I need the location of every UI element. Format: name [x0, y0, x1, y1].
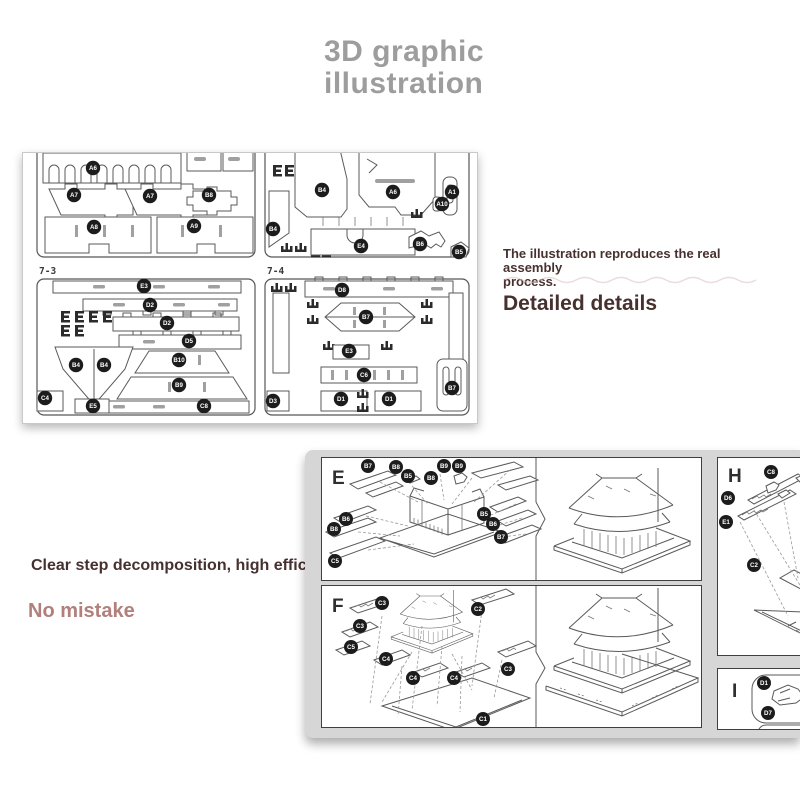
- part-label: A8: [87, 220, 101, 234]
- part-label: C4: [38, 391, 52, 405]
- assembled-model-drawing: [554, 468, 690, 573]
- part-label: C5: [344, 640, 358, 654]
- part-label: C4: [379, 652, 393, 666]
- part-label: C8: [197, 399, 211, 413]
- svg-text:B8: B8: [427, 475, 435, 482]
- svg-text:A6: A6: [89, 165, 97, 172]
- svg-text:D1: D1: [385, 396, 393, 403]
- svg-text:C2: C2: [474, 606, 482, 613]
- svg-text:E4: E4: [357, 243, 365, 250]
- part-label: C3: [501, 662, 515, 676]
- part-label: B4: [315, 183, 329, 197]
- part-label: C1: [476, 712, 490, 726]
- part-label: B9: [172, 378, 186, 392]
- part-label: A6: [386, 185, 400, 199]
- step-panel-h: H C8 D6 E1 C2: [717, 457, 800, 656]
- part-label: B8: [327, 522, 341, 536]
- part-label: B9: [437, 459, 451, 473]
- svg-text:B4: B4: [269, 226, 277, 233]
- svg-text:E1: E1: [722, 519, 730, 526]
- detailed-details-heading: Detailed details: [503, 292, 657, 316]
- svg-text:B4: B4: [318, 187, 326, 194]
- part-label: B9: [452, 459, 466, 473]
- part-label: A10: [435, 197, 449, 211]
- exploded-parts-drawing: [738, 464, 800, 638]
- step-panel-f: F C3 C2: [321, 585, 702, 728]
- part-label: C3: [353, 619, 367, 633]
- part-label: B4: [266, 222, 280, 236]
- svg-text:B7: B7: [364, 463, 372, 470]
- svg-text:D6: D6: [724, 495, 732, 502]
- part-label: A7: [67, 188, 81, 202]
- part-label: D7: [761, 706, 775, 720]
- part-label: C4: [447, 671, 461, 685]
- part-label: B10: [172, 353, 186, 367]
- step-divider-chevron: [536, 586, 545, 727]
- svg-text:B5: B5: [455, 249, 463, 256]
- svg-text:B5: B5: [480, 511, 488, 518]
- step-panel-i: I D1 D7: [717, 668, 800, 730]
- clear-step-caption: Clear step decomposition, high efficienc…: [31, 557, 348, 575]
- part-label: C8: [764, 465, 778, 479]
- part-label: B8: [202, 188, 216, 202]
- svg-text:D3: D3: [269, 398, 277, 405]
- part-label: D8: [335, 283, 349, 297]
- svg-text:B9: B9: [440, 463, 448, 470]
- assembly-steps-panel: E B7 B8 B5: [305, 450, 800, 738]
- svg-text:C4: C4: [450, 675, 458, 682]
- page-title-line2: illustration: [324, 68, 484, 100]
- svg-text:A7: A7: [146, 193, 154, 200]
- svg-text:D1: D1: [760, 680, 768, 687]
- part-label: B5: [401, 469, 415, 483]
- part-label: B6: [413, 237, 427, 251]
- sheet-id: 7-4: [267, 266, 284, 277]
- svg-text:D7: D7: [764, 710, 772, 717]
- svg-text:B10: B10: [173, 357, 185, 364]
- svg-text:B5: B5: [404, 473, 412, 480]
- sheet-1-pieces-art: [43, 153, 253, 253]
- page-title-line1: 3D graphic: [324, 36, 484, 68]
- svg-text:C5: C5: [347, 644, 355, 651]
- part-label: B4: [97, 358, 111, 372]
- part-label: B7: [445, 381, 459, 395]
- svg-text:A6: A6: [389, 189, 397, 196]
- part-label: B5: [452, 245, 466, 259]
- svg-text:C8: C8: [200, 403, 208, 410]
- svg-text:B6: B6: [342, 516, 350, 523]
- svg-text:B6: B6: [416, 241, 424, 248]
- part-label: A7: [143, 189, 157, 203]
- page-title: 3D graphic illustration: [324, 36, 484, 100]
- part-label: B6: [339, 512, 353, 526]
- svg-text:E3: E3: [345, 348, 353, 355]
- part-label: B8: [389, 460, 403, 474]
- part-label: B4: [69, 358, 83, 372]
- assembly-note-line1: The illustration reproduces the real ass…: [503, 247, 783, 275]
- svg-text:D2: D2: [163, 320, 171, 327]
- assembled-model-drawing: [546, 588, 698, 716]
- step-letter: H: [728, 466, 742, 487]
- svg-text:B4: B4: [72, 362, 80, 369]
- part-label: D1: [334, 392, 348, 406]
- part-label: C6: [357, 368, 371, 382]
- sheet-id: 7-3: [39, 266, 56, 277]
- part-label: A1: [445, 185, 459, 199]
- svg-text:C3: C3: [356, 623, 364, 630]
- svg-text:B7: B7: [448, 385, 456, 392]
- no-mistake-heading: No mistake: [28, 600, 135, 623]
- svg-text:E5: E5: [89, 403, 97, 410]
- part-label: B8: [424, 471, 438, 485]
- svg-text:A8: A8: [90, 224, 98, 231]
- parts-sheets-panel: 7-3 7-4: [22, 152, 478, 424]
- exploded-parts-drawing: [336, 589, 536, 727]
- svg-text:A1: A1: [448, 189, 456, 196]
- svg-text:A10: A10: [436, 201, 448, 208]
- part-label: D2: [143, 298, 157, 312]
- step-letter: I: [732, 681, 737, 702]
- svg-text:B7: B7: [497, 534, 505, 541]
- scan-artifact-line: [500, 272, 768, 286]
- part-label: C4: [406, 671, 420, 685]
- step-letter: F: [332, 596, 344, 617]
- svg-text:B8: B8: [205, 192, 213, 199]
- svg-text:A7: A7: [70, 192, 78, 199]
- svg-text:D2: D2: [146, 302, 154, 309]
- part-label: E5: [86, 399, 100, 413]
- svg-text:C1: C1: [479, 716, 487, 723]
- part-label: E3: [137, 279, 151, 293]
- part-label: D2: [160, 316, 174, 330]
- svg-text:B7: B7: [362, 314, 370, 321]
- part-label: B7: [361, 459, 375, 473]
- part-label: C5: [328, 554, 342, 568]
- part-label: D1: [382, 392, 396, 406]
- part-label: E4: [354, 239, 368, 253]
- svg-text:C4: C4: [409, 675, 417, 682]
- step-divider-chevron: [536, 458, 545, 580]
- step-letter: E: [332, 468, 345, 489]
- svg-text:C5: C5: [331, 558, 339, 565]
- part-label: B7: [494, 530, 508, 544]
- svg-text:C8: C8: [767, 469, 775, 476]
- svg-text:B8: B8: [330, 526, 338, 533]
- svg-text:C3: C3: [378, 600, 386, 607]
- svg-text:B9: B9: [455, 463, 463, 470]
- svg-text:B8: B8: [392, 464, 400, 471]
- step-panel-e: E B7 B8 B5: [321, 457, 702, 581]
- part-label: A9: [187, 219, 201, 233]
- svg-text:D5: D5: [185, 338, 193, 345]
- part-label: E1: [719, 515, 733, 529]
- svg-text:D8: D8: [338, 287, 346, 294]
- part-label: C2: [471, 602, 485, 616]
- svg-text:C4: C4: [41, 395, 49, 402]
- part-label: C2: [747, 558, 761, 572]
- part-label: D6: [721, 491, 735, 505]
- part-label: D3: [266, 394, 280, 408]
- part-label: D5: [182, 334, 196, 348]
- svg-text:B6: B6: [489, 521, 497, 528]
- svg-text:B4: B4: [100, 362, 108, 369]
- svg-text:E3: E3: [140, 283, 148, 290]
- svg-text:A9: A9: [190, 223, 198, 230]
- part-label: A6: [86, 161, 100, 175]
- svg-text:D1: D1: [337, 396, 345, 403]
- part-label: D1: [757, 676, 771, 690]
- svg-text:C2: C2: [750, 562, 758, 569]
- svg-text:C3: C3: [504, 666, 512, 673]
- part-label: B6: [486, 517, 500, 531]
- part-label: B7: [359, 310, 373, 324]
- part-label: E3: [342, 344, 356, 358]
- part-label: C3: [375, 596, 389, 610]
- svg-text:B9: B9: [175, 382, 183, 389]
- svg-text:C4: C4: [382, 656, 390, 663]
- svg-text:C6: C6: [360, 372, 368, 379]
